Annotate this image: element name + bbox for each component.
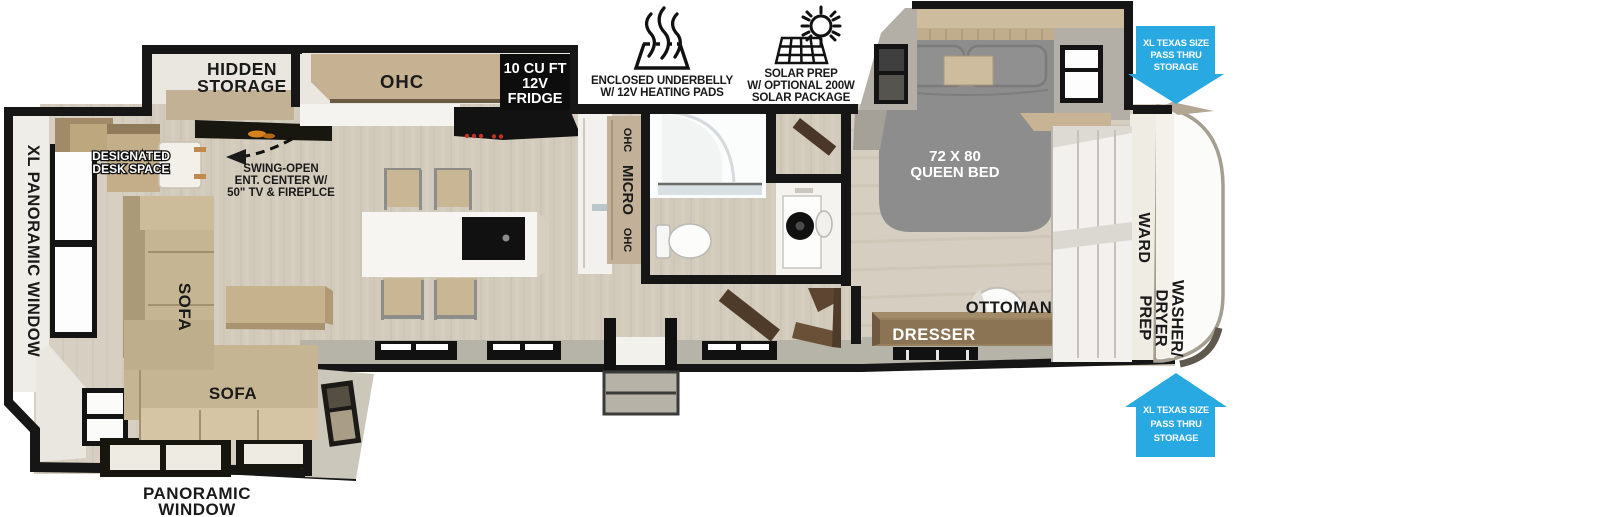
svg-text:OHC: OHC [621,128,633,153]
svg-text:FRIDGE: FRIDGE [508,91,563,107]
svg-text:MICRO: MICRO [619,165,636,215]
svg-text:XL TEXAS SIZE: XL TEXAS SIZE [1143,405,1209,415]
svg-text:QUEEN BED: QUEEN BED [910,164,999,181]
svg-text:PASS THRU: PASS THRU [1150,50,1202,60]
svg-text:OTTOMAN: OTTOMAN [966,299,1053,317]
svg-text:PASS THRU: PASS THRU [1150,419,1202,429]
svg-text:WINDOW: WINDOW [158,500,236,517]
svg-text:PREP: PREP [1136,295,1155,340]
svg-text:XL PANORAMIC WINDOW: XL PANORAMIC WINDOW [24,145,42,357]
svg-text:SWING-OPEN: SWING-OPEN [243,163,318,175]
svg-text:DESK SPACE: DESK SPACE [92,162,169,176]
svg-text:OHC: OHC [621,228,633,253]
svg-text:STORAGE: STORAGE [197,76,287,96]
svg-text:SOFA: SOFA [209,384,257,403]
svg-text:50" TV & FIREPLCE: 50" TV & FIREPLCE [227,187,335,199]
svg-text:WARD: WARD [1135,213,1152,264]
svg-text:SOFA: SOFA [175,283,194,331]
svg-text:ENT. CENTER W/: ENT. CENTER W/ [235,175,328,187]
svg-text:STORAGE: STORAGE [1154,433,1198,443]
svg-text:72 X 80: 72 X 80 [929,148,981,165]
svg-text:10 CU FT: 10 CU FT [504,61,567,77]
svg-text:XL TEXAS SIZE: XL TEXAS SIZE [1143,38,1209,48]
svg-text:DESIGNATED: DESIGNATED [92,149,170,163]
svg-text:DRESSER: DRESSER [892,326,975,344]
svg-text:12V: 12V [522,76,548,92]
svg-text:OHC: OHC [380,71,424,92]
svg-text:STORAGE: STORAGE [1154,62,1198,72]
svg-text:SOLAR PACKAGE: SOLAR PACKAGE [752,91,851,104]
svg-text:W/ 12V HEATING PADS: W/ 12V HEATING PADS [600,86,724,99]
